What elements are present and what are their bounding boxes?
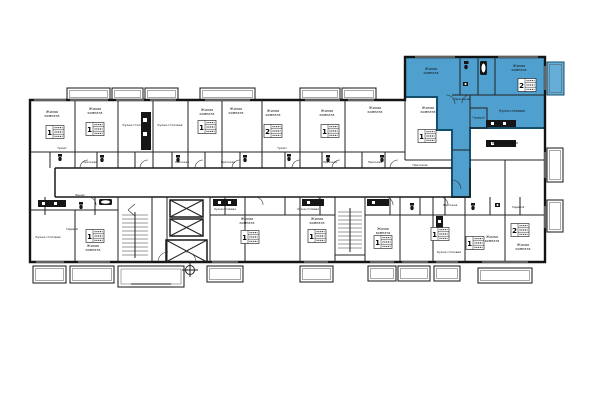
apartment-stamp: 1 — [418, 130, 436, 143]
room-label-living: Жилаякомната — [367, 106, 382, 114]
apartment-stamp: 1 — [374, 236, 392, 249]
room-label-kitchen: Кухня-столовая — [492, 141, 518, 145]
balcony — [112, 88, 143, 100]
room-label-bath: Ванная — [75, 194, 85, 197]
floor-plan: ЖилаякомнатаЖилаякомнатаКухня-столоваяКу… — [0, 0, 600, 400]
apartment-stamp: 1 — [466, 237, 484, 250]
room-label-living: Жилаякомната — [511, 64, 526, 72]
stamp-room-count: 1 — [87, 233, 92, 241]
room-label-hall: Прихожая — [175, 160, 189, 164]
room-label-living: Жилаякомната — [239, 217, 254, 225]
toilet — [100, 155, 104, 162]
stamp-room-count: 1 — [242, 234, 247, 242]
stamp-room-count: 2 — [265, 128, 270, 136]
toilet — [58, 154, 62, 161]
toilet — [79, 202, 83, 209]
doors-layer — [80, 95, 470, 262]
room-label-living: Жилаякомната — [265, 109, 280, 117]
stairs-right — [335, 197, 365, 255]
apartment-stamp: 2 — [518, 79, 536, 92]
bathtub — [480, 61, 487, 75]
balcony — [434, 266, 460, 281]
apartment-stamp: 1 — [431, 228, 449, 241]
apartment-stamp: 1 — [86, 230, 104, 243]
balcony — [300, 88, 340, 100]
elevator-shafts — [166, 200, 207, 262]
balcony — [478, 268, 532, 283]
apartment-stamp: 1 — [241, 231, 259, 244]
apartment-stamp: 1 — [321, 125, 339, 138]
room-label-kitchen: Кухня-столовая — [36, 235, 61, 239]
corridor — [55, 168, 470, 197]
stamp-room-count: 1 — [375, 239, 380, 247]
room-label-living: Жилаякомната — [199, 108, 214, 116]
kitchen-counter — [367, 199, 389, 206]
stairs-left — [118, 197, 152, 262]
stamp-room-count: 1 — [199, 124, 204, 132]
stamp-room-count: 2 — [519, 82, 524, 90]
room-label-kitchen: Кухня-столовая — [499, 109, 525, 113]
stamp-room-count: 1 — [322, 128, 327, 136]
entrance-porch — [118, 266, 184, 287]
toilet — [410, 203, 414, 210]
room-label-wardrobe: Гардероб — [512, 205, 525, 209]
room-label-living: Жилаякомната — [85, 244, 100, 252]
stamp-room-count: 2 — [512, 227, 517, 235]
balcony — [398, 266, 430, 281]
room-label-living: Жилаякомната — [87, 107, 102, 115]
stamp-room-count: 1 — [309, 233, 314, 241]
kitchen-counter — [38, 200, 66, 207]
balcony — [300, 266, 333, 282]
sink — [495, 203, 500, 207]
apartment-stamp: 2 — [264, 125, 282, 138]
kitchen-counter — [302, 199, 324, 206]
balcony — [207, 266, 243, 282]
toilet — [243, 155, 247, 162]
room-label-living: Жилаякомната — [319, 109, 334, 117]
stamp-room-count: 1 — [419, 133, 424, 141]
room-label-living: Жилаякомната — [228, 107, 243, 115]
room-label-living: Жилаякомната — [423, 67, 438, 75]
kitchen-counter — [486, 120, 516, 127]
room-label-wardrobe: Гардероб — [66, 228, 79, 231]
balcony — [145, 88, 178, 100]
room-label-kitchen: Кухня-столовая — [158, 123, 183, 127]
room-label-hall: Прихожая — [413, 163, 428, 167]
bathtub — [99, 199, 112, 205]
kitchen-counter — [141, 112, 151, 150]
room-label-kitchen: Кухня-столовая — [297, 207, 319, 211]
room-label-wardrobe: Гардероб — [472, 117, 485, 120]
room-label-kitchen: Кухня-столовая — [437, 250, 461, 254]
room-label-toilet: Туалет — [57, 146, 67, 150]
apartment-stamp: 1 — [308, 230, 326, 243]
stamp-room-count: 1 — [87, 126, 92, 134]
room-label-hall: Прихожая — [454, 97, 470, 101]
apartment-stamp: 1 — [86, 123, 104, 136]
toilet — [471, 203, 475, 210]
apartment-stamp: 1 — [198, 121, 216, 134]
room-label-living: Жилаякомната — [515, 243, 530, 251]
room-label-hall: Прихожая — [323, 160, 337, 164]
room-label-living: Жилаякомната — [44, 110, 59, 118]
room-label-living: Жилаякомната — [309, 217, 324, 225]
room-label-hall: Прихожая — [83, 160, 97, 164]
stamp-room-count: 1 — [47, 129, 52, 137]
balcony — [368, 266, 396, 281]
room-label-toilet: Туалет — [277, 146, 287, 150]
apartment-stamp: 2 — [511, 224, 529, 237]
balcony — [70, 266, 114, 283]
sink — [463, 82, 468, 86]
apartment-stamp: 1 — [46, 126, 64, 139]
room-label-kitchen: Кухня-столовая — [123, 123, 148, 127]
balcony — [200, 88, 255, 100]
room-label-hall: Прихожая — [443, 203, 458, 207]
kitchen-counter — [213, 199, 237, 206]
toilet — [287, 154, 291, 161]
stamp-room-count: 1 — [467, 240, 472, 248]
room-label-kitchen: Кухня-столовая — [214, 207, 236, 211]
room-label-living: Жилаякомната — [420, 106, 435, 114]
room-label-living: Жилаякомната — [376, 227, 391, 235]
balcony — [342, 88, 376, 100]
balcony — [547, 200, 563, 232]
stamp-room-count: 1 — [432, 231, 437, 239]
room-label-hall: Прихожая — [368, 160, 382, 164]
balcony — [547, 148, 563, 182]
balcony — [67, 88, 110, 100]
highlighted-apartment[interactable] — [405, 57, 564, 197]
room-label-living: Жилаякомната — [485, 235, 500, 243]
room-label-hall: Прихожая — [221, 160, 235, 164]
balcony — [33, 266, 66, 283]
